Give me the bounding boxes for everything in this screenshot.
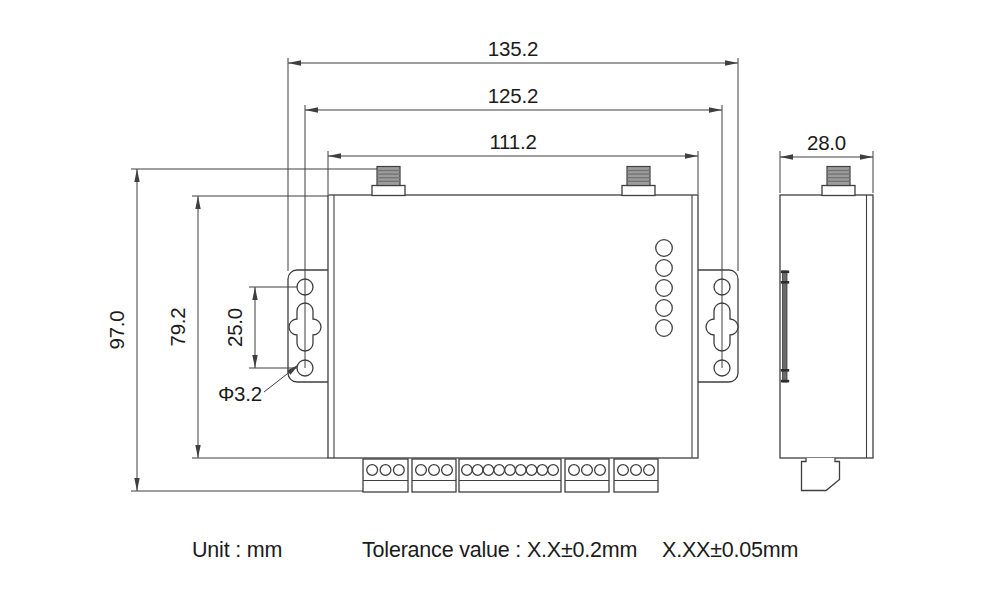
terminal-pin [515,465,526,476]
terminal-pin [505,465,516,476]
terminal-pin [472,465,483,476]
led-indicator [656,240,673,257]
terminal-pin [483,465,494,476]
dimension-arrow [685,153,698,158]
led-indicator [656,260,673,277]
side-bracket-rail [783,271,788,382]
antenna-threaded-body [377,167,400,186]
terminal-block [412,459,456,492]
dimension-drawing-page: 135.2125.2111.228.097.079.225.0Φ3.2 Unit… [0,0,1000,604]
footer-notes: Unit : mm Tolerance value : X.X±0.2mm X.… [192,538,798,562]
dimension-arrow [288,60,301,65]
footer-unit-label: Unit : mm [192,538,282,562]
terminal-pin [644,465,655,476]
footer-tolerance-label: Tolerance value : X.X±0.2mm [362,538,637,562]
terminal-pin [595,465,606,476]
terminal-pin [367,465,378,476]
terminal-pin [526,465,537,476]
terminal-pin [631,465,642,476]
antenna-connector [822,167,855,196]
device-body-front [328,195,698,458]
led-indicator [656,300,673,317]
antenna-connector [372,167,405,196]
antenna-threaded-body [627,167,650,186]
dimension-arrow [195,196,200,209]
dimension-arrow [709,107,722,112]
device-body-side [780,195,873,458]
dimension-body-width-label: 111.2 [489,130,536,153]
terminal-pin [442,465,453,476]
terminal-block [565,459,609,492]
antenna-base-flange [372,186,405,196]
front-view [288,167,738,493]
led-indicator [656,280,673,297]
led-indicators [656,240,673,337]
terminal-pin [462,465,473,476]
terminal-pin [494,465,505,476]
dimension-bracket-hole-span-label: 125.2 [488,84,538,107]
dimension-arrow [328,153,341,158]
dimension-arrow [134,169,139,182]
dimension-arrow [195,445,200,458]
terminal-pin [618,465,629,476]
dimension-arrow [860,154,873,159]
terminal-pin [582,465,593,476]
dimension-arrow [252,287,257,300]
dimension-overall-height-label: 97.0 [105,310,128,349]
terminal-block [363,459,408,492]
side-bracket-screw [781,380,789,383]
side-bracket-screw [781,369,789,372]
dimension-overall-width-label: 135.2 [488,37,538,60]
dimension-arrow [305,107,318,112]
terminal-pin [380,465,391,476]
terminal-pin [537,465,548,476]
terminal-pin [569,465,580,476]
terminal-pin [393,465,404,476]
side-terminal-block [802,458,840,491]
side-bracket-screw [781,271,789,274]
terminal-pin [429,465,440,476]
terminal-block [614,459,658,492]
terminal-pin [548,465,559,476]
antenna-connector [622,167,655,196]
dimension-drawing: 135.2125.2111.228.097.079.225.0Φ3.2 Unit… [0,0,1000,604]
antenna-threaded-body [827,167,850,186]
side-bracket-screw [781,281,789,284]
led-indicator [656,320,673,337]
antenna-connectors [372,167,655,196]
antenna-connector-side [822,167,855,196]
dimension-arrow [134,478,139,491]
footer-tolerance-label-2: X.XX±0.05mm [662,538,798,562]
dimension-arrow [725,60,738,65]
antenna-base-flange [622,186,655,196]
terminal-blocks [363,459,658,492]
dimension-bracket-hole-diameter-label: Φ3.2 [218,382,262,405]
side-view [780,167,873,491]
terminal-pin [416,465,427,476]
dimension-bracket-hole-spacing-label: 25.0 [223,308,246,347]
dimension-arrow [780,154,793,159]
dimension-depth-label: 28.0 [807,131,846,154]
dimension-body-height-label: 79.2 [166,307,189,346]
dimension-arrow [252,355,257,368]
terminal-block [459,459,561,492]
antenna-base-flange [822,186,855,196]
